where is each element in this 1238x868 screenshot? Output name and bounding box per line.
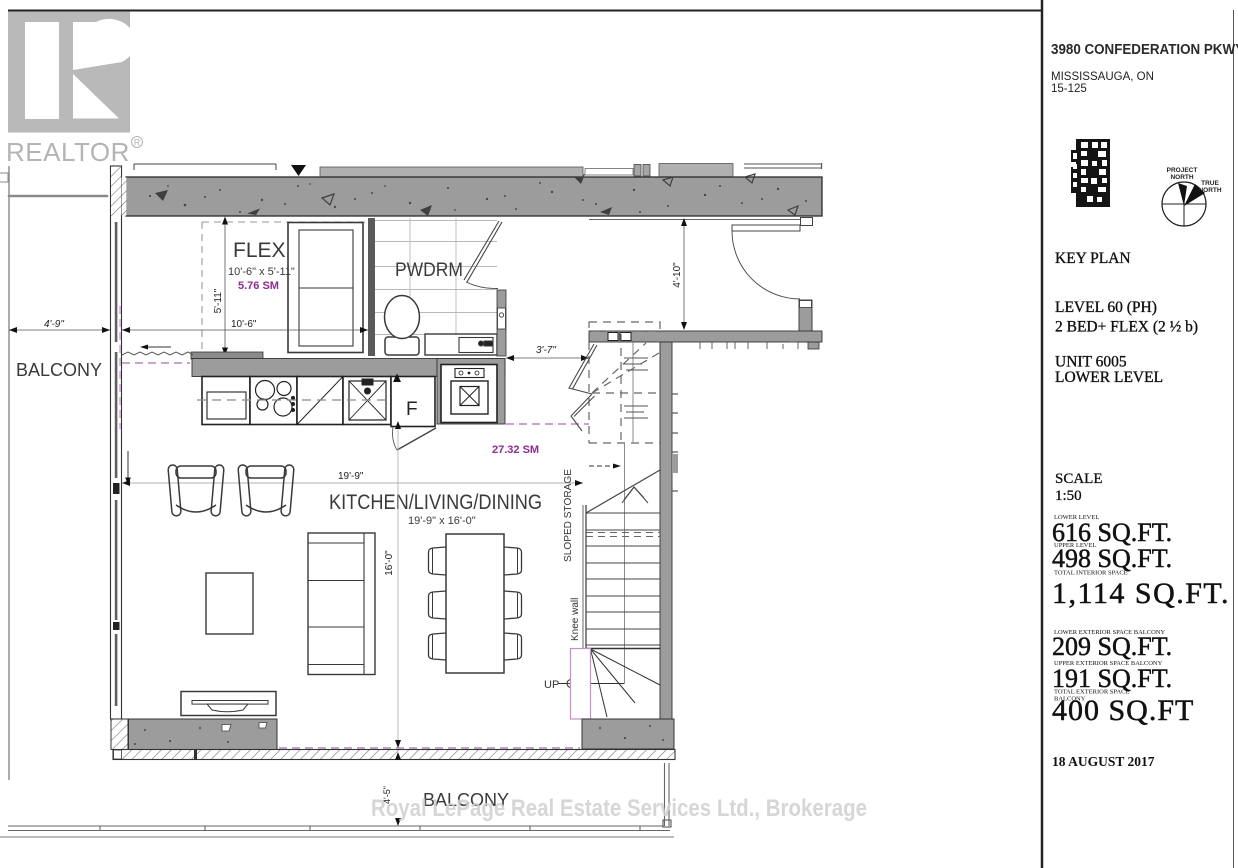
svg-text:FLEX: FLEX [233, 239, 286, 262]
svg-text:TOTAL INTERIOR SPACE: TOTAL INTERIOR SPACE [1054, 570, 1128, 577]
svg-text:Royal LePage Real Estate Servi: Royal LePage Real Estate Services Ltd., … [371, 795, 867, 822]
svg-text:PROJECT: PROJECT [1167, 167, 1198, 174]
svg-text:F: F [406, 399, 418, 420]
svg-text:1:50: 1:50 [1055, 488, 1082, 504]
svg-text:5'-11": 5'-11" [213, 288, 224, 313]
svg-text:10'-6" x 5'-11": 10'-6" x 5'-11" [228, 266, 295, 278]
svg-text:19'-9": 19'-9" [338, 471, 364, 482]
svg-text:TRUE: TRUE [1201, 180, 1219, 187]
svg-text:2 BED+ FLEX (2 ½ b): 2 BED+ FLEX (2 ½ b) [1055, 319, 1198, 336]
svg-text:NORTH: NORTH [1170, 174, 1193, 181]
svg-text:19'-9" x 16'-0": 19'-9" x 16'-0" [408, 515, 476, 527]
svg-text:R: R [134, 138, 141, 148]
svg-text:3'-7": 3'-7" [536, 345, 556, 356]
svg-text:UNIT 6005: UNIT 6005 [1055, 354, 1127, 371]
svg-text:UP: UP [544, 679, 559, 691]
svg-text:16'-0": 16'-0" [384, 550, 395, 576]
svg-text:18 AUGUST 2017: 18 AUGUST 2017 [1052, 754, 1155, 769]
svg-text:PWDRM: PWDRM [395, 260, 463, 281]
svg-text:KEY PLAN: KEY PLAN [1055, 250, 1131, 267]
svg-text:LOWER LEVEL: LOWER LEVEL [1055, 369, 1163, 386]
svg-text:Knee wall: Knee wall [570, 598, 581, 641]
svg-text:4'-9": 4'-9" [44, 319, 64, 330]
svg-text:MISSISSAUGA, ON: MISSISSAUGA, ON [1051, 71, 1154, 83]
svg-text:NORTH: NORTH [1198, 187, 1221, 194]
svg-text:209 SQ.FT.: 209 SQ.FT. [1052, 632, 1172, 661]
svg-text:4'-10": 4'-10" [672, 262, 683, 288]
svg-text:15-125: 15-125 [1051, 83, 1087, 95]
svg-text:SCALE: SCALE [1055, 471, 1103, 487]
svg-text:10'-6": 10'-6" [231, 319, 257, 330]
svg-text:1,114 SQ.FT.: 1,114 SQ.FT. [1052, 577, 1230, 610]
svg-text:27.32 SM: 27.32 SM [492, 444, 539, 456]
svg-text:REALTOR: REALTOR [6, 137, 130, 167]
svg-text:KITCHEN/LIVING/DINING: KITCHEN/LIVING/DINING [329, 491, 542, 514]
svg-text:LEVEL 60 (PH): LEVEL 60 (PH) [1055, 299, 1157, 316]
svg-text:3980 CONFEDERATION PKWY: 3980 CONFEDERATION PKWY [1051, 42, 1238, 58]
svg-text:BALCONY: BALCONY [16, 360, 102, 380]
svg-text:5.76 SM: 5.76 SM [238, 280, 279, 292]
svg-text:400 SQ.FT: 400 SQ.FT [1052, 694, 1194, 727]
